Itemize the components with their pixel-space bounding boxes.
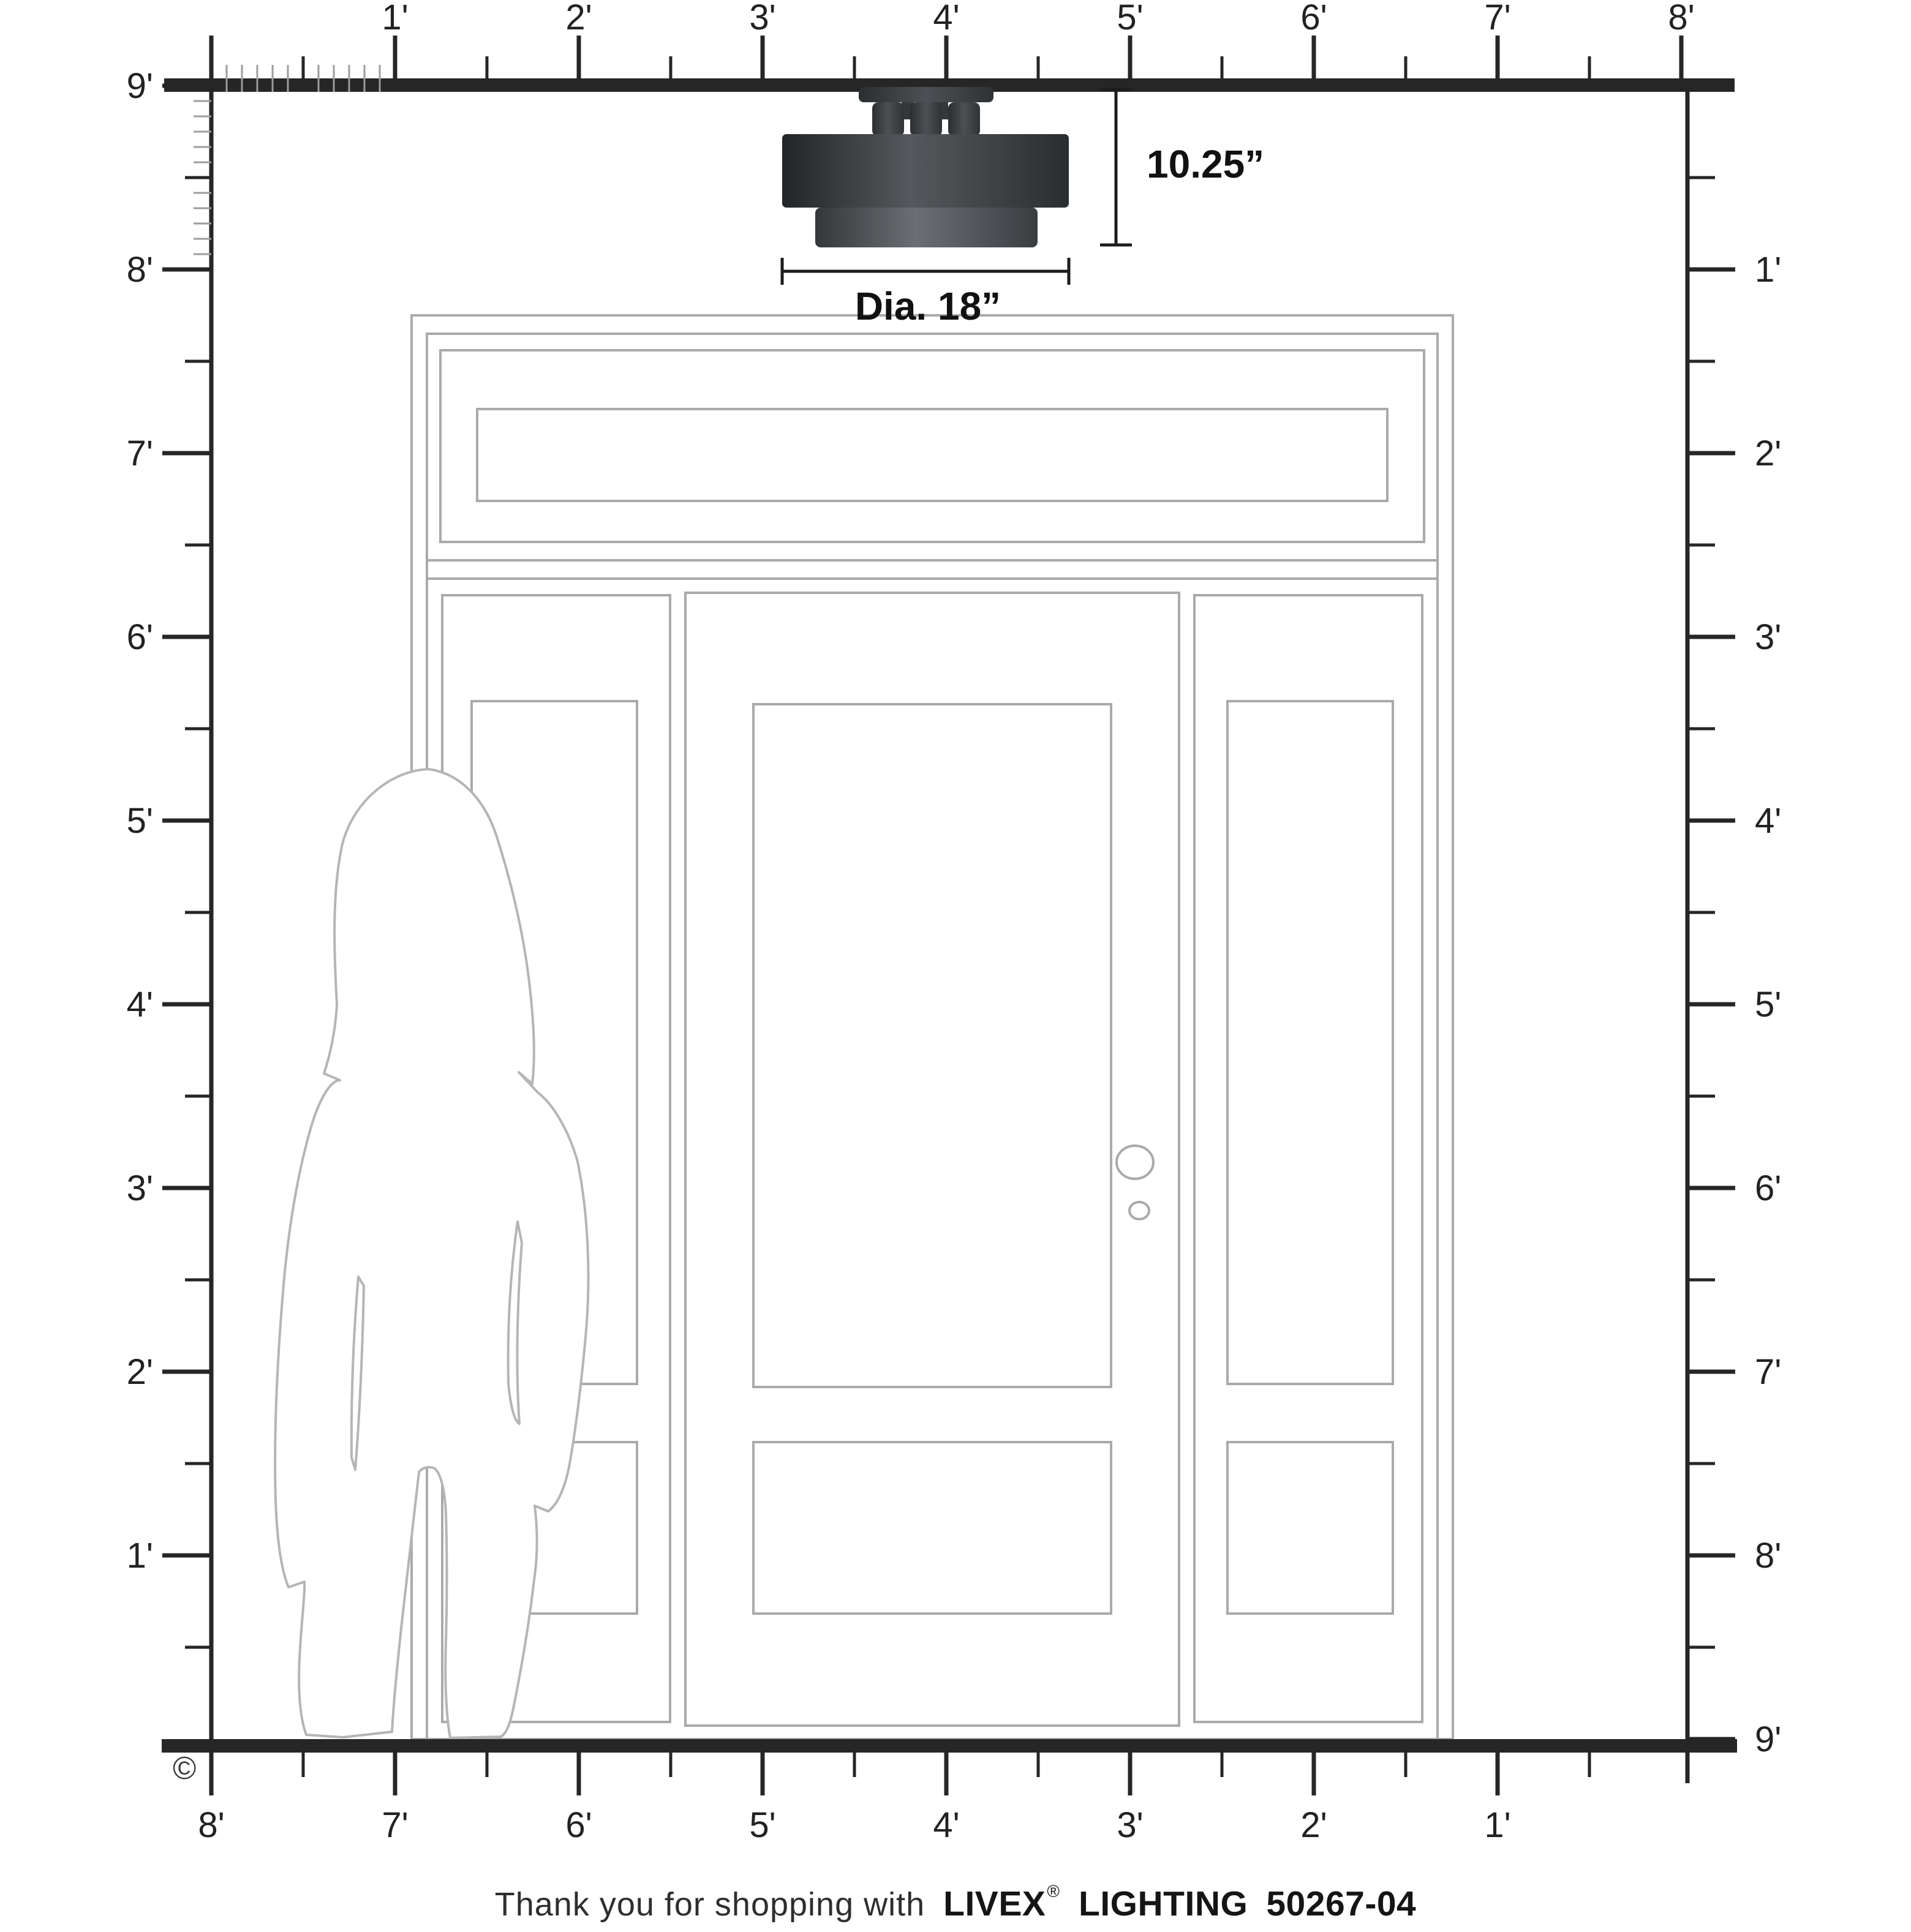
door-outer-casing — [412, 315, 1453, 1739]
ruler-label: 3' — [1755, 617, 1781, 657]
ruler-label: 8' — [127, 250, 153, 290]
fixture-stem — [948, 102, 980, 137]
door-lower-panel — [753, 1442, 1111, 1614]
woman-silhouette — [275, 769, 588, 1738]
diameter-dimension-label: Dia. 18” — [855, 284, 1001, 328]
ruler-label: 6' — [565, 1805, 592, 1845]
ruler-label: 7' — [382, 1805, 408, 1845]
ruler-label: 7' — [1484, 0, 1510, 37]
transom-window — [477, 409, 1387, 501]
ruler-label: 4' — [127, 985, 153, 1024]
height-dimension-label: 10.25” — [1147, 142, 1264, 186]
diameter-dimension: Dia. 18” — [782, 258, 1069, 328]
ruler-label: 2' — [1300, 1805, 1327, 1845]
ruler-label: 9' — [1755, 1720, 1781, 1759]
right-sidelight-lower-panel — [1227, 1442, 1393, 1614]
ruler-label: 3' — [127, 1168, 153, 1208]
ruler-label: 1' — [382, 0, 408, 37]
door-knob — [1117, 1146, 1153, 1179]
ruler-label: 6' — [1300, 0, 1327, 37]
copyright-symbol: © — [173, 1750, 196, 1787]
ruler-label: 6' — [127, 617, 153, 657]
ruler-label: 2' — [127, 1352, 153, 1392]
fixture-canopy — [859, 87, 993, 102]
door-upper-panel — [753, 704, 1111, 1387]
ruler-label: 1' — [1484, 1805, 1510, 1845]
flush-mount-fixture — [782, 87, 1069, 247]
ruler-label: 7' — [1755, 1352, 1781, 1392]
fixture-drum-shade — [782, 134, 1069, 208]
ruler-label: 1' — [1755, 250, 1781, 290]
ruler-label: 7' — [127, 434, 153, 473]
ruler-label: 5' — [127, 801, 153, 841]
footer-brand: LIVEX — [943, 1884, 1046, 1923]
ruler-label: 8' — [1668, 0, 1694, 37]
woman-body-outline — [275, 769, 588, 1738]
fixture-stem — [910, 102, 942, 137]
floor-line — [162, 1739, 1737, 1753]
height-dimension: 10.25” — [1100, 89, 1264, 245]
ruler-label: 5' — [1755, 985, 1781, 1024]
footer-product-line: LIGHTING — [1079, 1884, 1248, 1923]
footer: Thank you for shopping with LIVEX® LIGHT… — [0, 1864, 1911, 1919]
footer-sku: 50267-04 — [1266, 1884, 1416, 1923]
right-sidelight-upper-panel — [1227, 701, 1393, 1384]
ruler-label: 3' — [749, 0, 775, 37]
ruler-label: 2' — [1755, 434, 1781, 473]
ruler-label: 8' — [198, 1805, 224, 1845]
ruler-label: 1' — [127, 1536, 153, 1576]
ruler-label: 8' — [1755, 1536, 1781, 1576]
ruler-label: 5' — [1117, 0, 1143, 37]
ruler-label: 5' — [749, 1805, 775, 1845]
door-inner-casing — [427, 334, 1438, 1739]
transom-frame — [440, 350, 1424, 542]
fixture-stem — [872, 102, 904, 137]
registered-trademark-icon: ® — [1047, 1882, 1060, 1901]
ruler-label: 3' — [1117, 1805, 1143, 1845]
door-deadbolt — [1129, 1202, 1149, 1219]
ruler-label: 4' — [933, 0, 959, 37]
dimension-diagram: 1'2'3'4'5'6'7'8'9'8'7'6'5'4'3'2'1'1'2'3'… — [0, 0, 1911, 1911]
ruler-label: 2' — [565, 0, 592, 37]
ruler-label: 6' — [1755, 1168, 1781, 1208]
door-slab — [685, 593, 1179, 1726]
ruler-label: 4' — [933, 1805, 959, 1845]
ruler-label: 4' — [1755, 801, 1781, 841]
fixture-diffuser-ring — [815, 208, 1038, 247]
ruler-label: 9' — [127, 66, 153, 106]
door-unit — [412, 315, 1453, 1739]
footer-message: Thank you for shopping with — [495, 1886, 925, 1923]
